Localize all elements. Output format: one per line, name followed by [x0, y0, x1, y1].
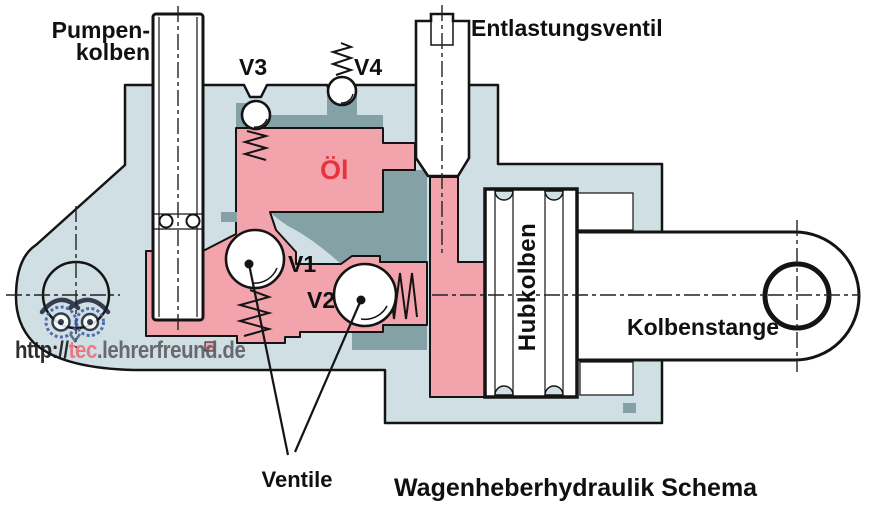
- piston-rod: [577, 232, 859, 360]
- port-marker: [623, 403, 636, 413]
- diagram-title: Wagenheberhydraulik Schema: [394, 476, 757, 501]
- bore-clearance-bottom: [580, 362, 633, 395]
- relief-valve-label: Entlastungsventil: [471, 17, 663, 40]
- port-marker: [221, 212, 237, 222]
- watermark-url: http://tec.lehrerfreund.de: [15, 337, 245, 365]
- valve-v1-label: V1: [288, 253, 316, 276]
- jack-hydraulics-diagram: Pumpen- kolben Entlastungsventil V3 V4 Ö…: [0, 0, 880, 510]
- ball-v1: [226, 230, 284, 288]
- valve-v4-label: V4: [354, 56, 382, 79]
- seal-ring: [160, 215, 173, 228]
- diagram-canvas: [0, 0, 880, 510]
- ball-v3: [242, 101, 270, 129]
- valve-v2-label: V2: [307, 289, 335, 312]
- ball-v4: [328, 77, 356, 105]
- valve-v3-label: V3: [239, 56, 267, 79]
- valves-pointer-label: Ventile: [260, 469, 334, 491]
- seal-ring: [187, 215, 200, 228]
- ball-v2: [334, 264, 396, 326]
- pump-piston-label: Pumpen- kolben: [40, 19, 150, 63]
- bore-clearance-top: [577, 193, 633, 230]
- lift-piston-label: Hubkolben: [516, 223, 540, 352]
- oil-label: Öl: [320, 157, 349, 184]
- spring-v4: [333, 43, 351, 75]
- piston-rod-label: Kolbenstange: [627, 316, 779, 339]
